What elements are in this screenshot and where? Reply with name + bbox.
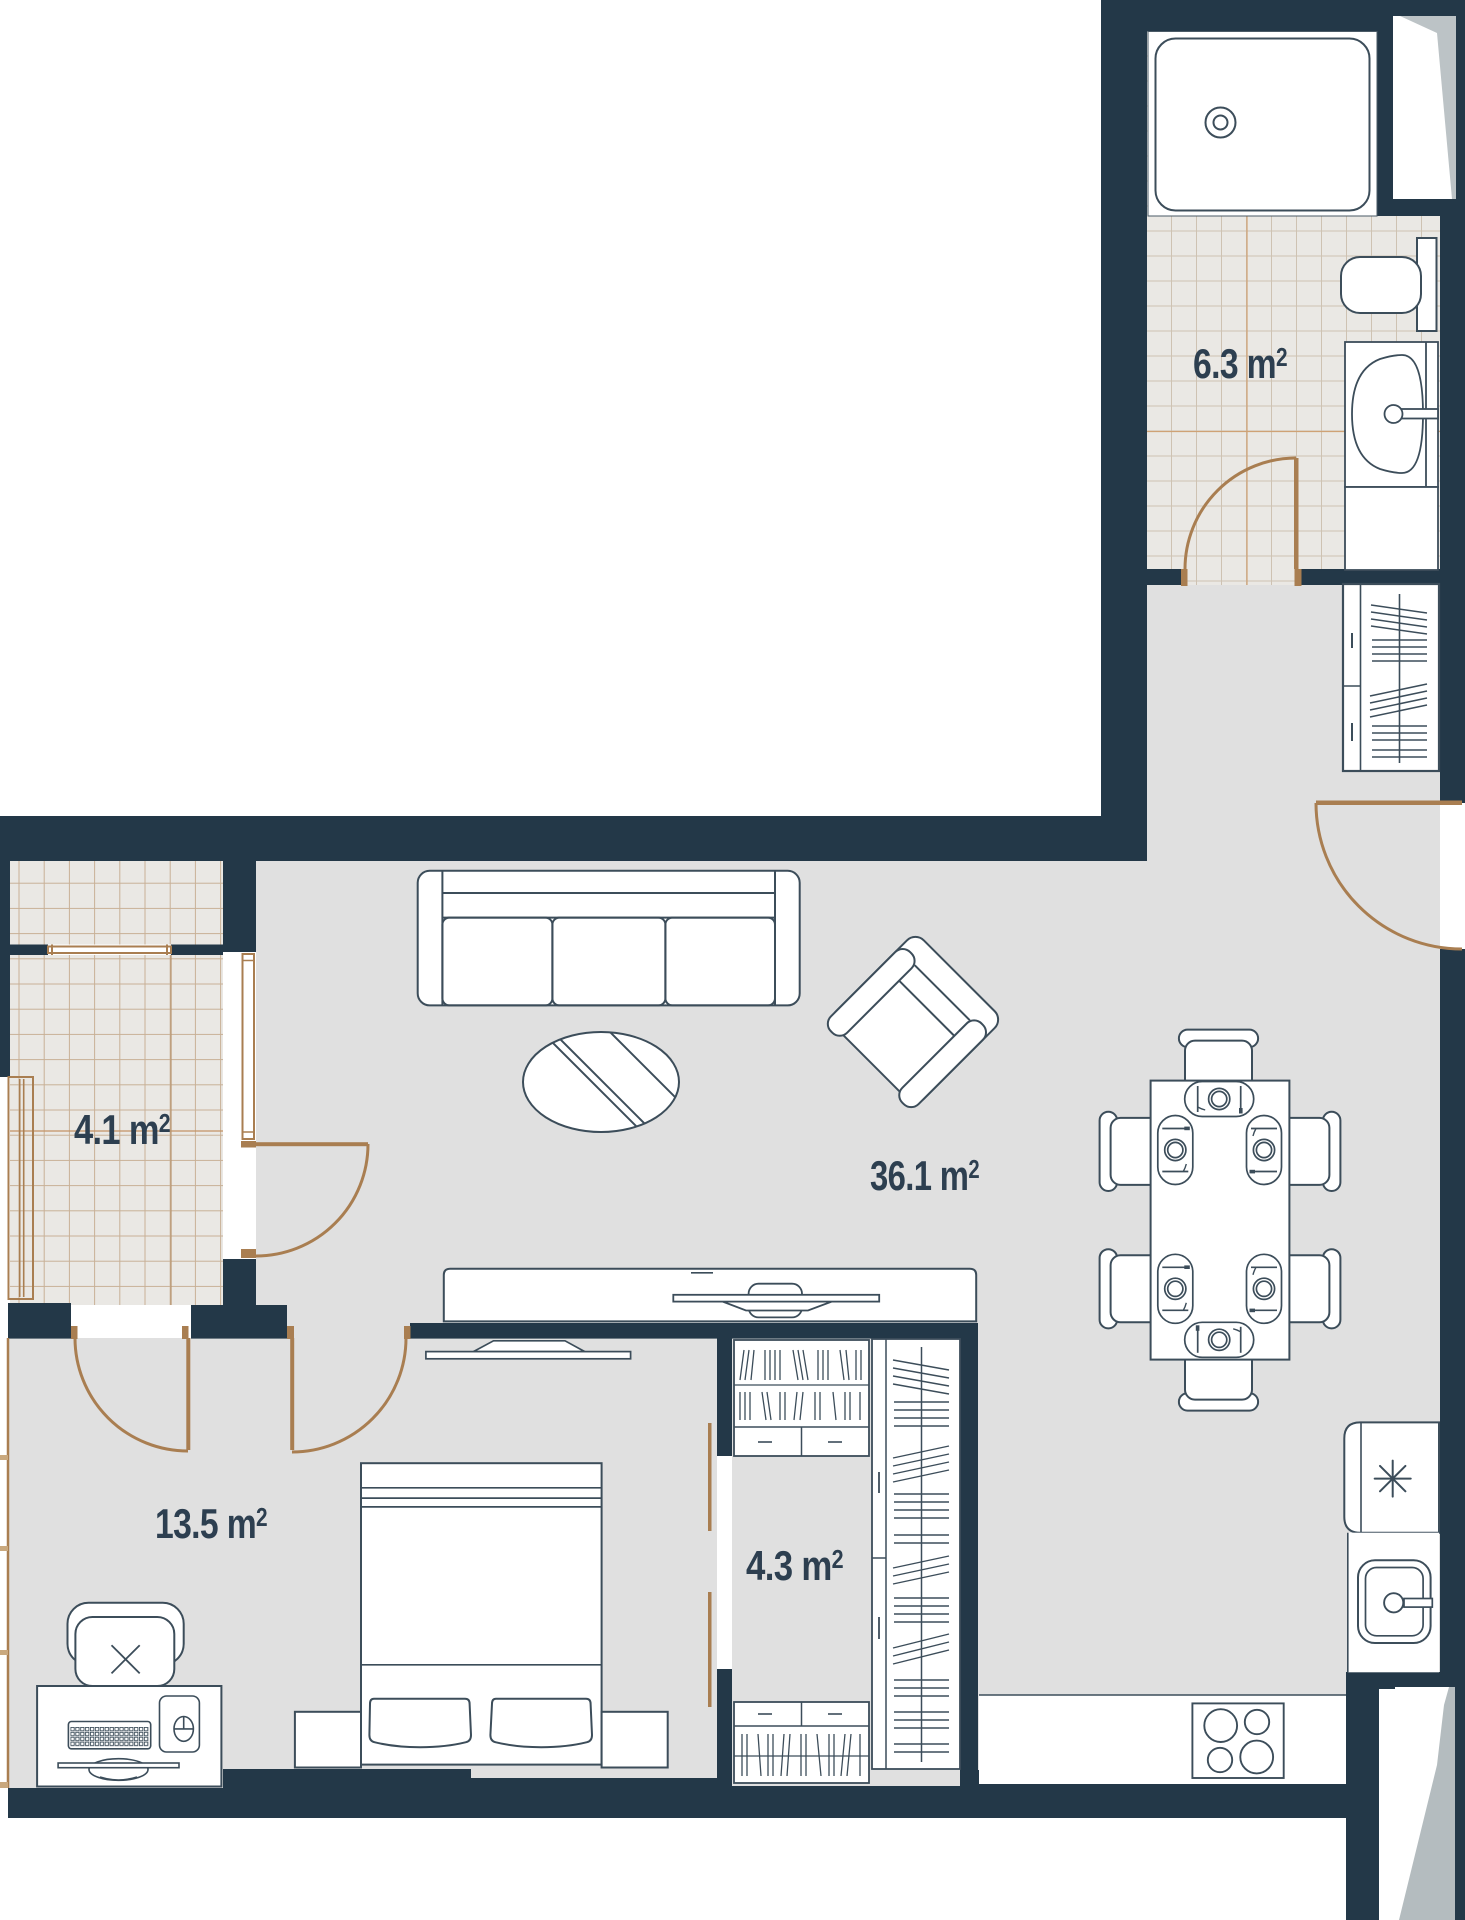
svg-text:36.1 m2: 36.1 m2 bbox=[870, 1152, 979, 1199]
svg-text:13.5 m2: 13.5 m2 bbox=[155, 1500, 267, 1547]
svg-text:4.1 m2: 4.1 m2 bbox=[74, 1106, 170, 1153]
svg-text:6.3 m2: 6.3 m2 bbox=[1193, 340, 1287, 387]
svg-text:4.3 m2: 4.3 m2 bbox=[746, 1542, 843, 1589]
